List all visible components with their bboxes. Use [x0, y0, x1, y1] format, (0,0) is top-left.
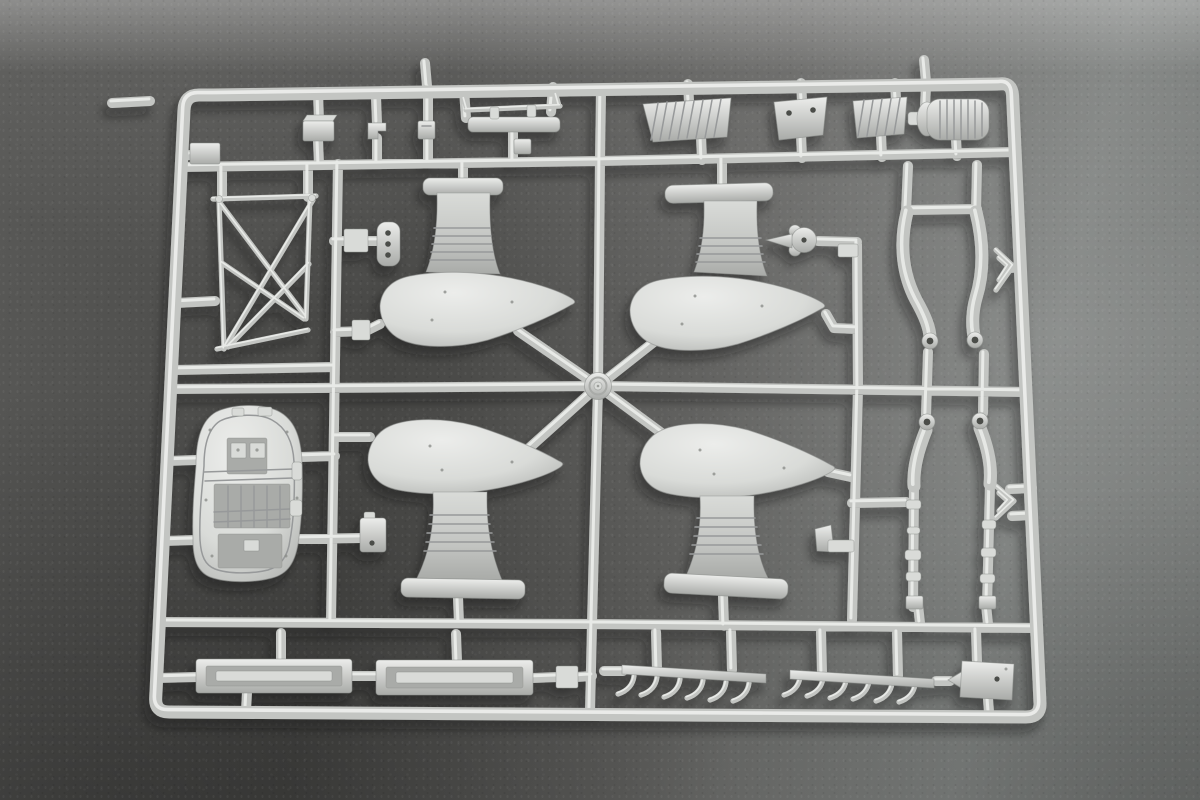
strut-frame-corner-nub — [309, 195, 316, 202]
strut-frame-corner-nub — [216, 196, 223, 203]
exhaust-stack-comb-1 — [622, 665, 766, 683]
photo-of-model-sprue — [0, 0, 1200, 800]
small-bracket-part-2 — [418, 121, 435, 139]
wheel-spat-lower-right — [640, 424, 835, 600]
small-box-part — [303, 115, 337, 141]
wheel-spat-upper-right — [630, 183, 825, 351]
louvered-panel-right — [853, 97, 907, 138]
access-plate-two-holes — [774, 97, 827, 140]
gate-pad — [352, 320, 370, 340]
small-flag-lower-right — [815, 525, 854, 552]
louvered-panel-left — [643, 98, 731, 142]
flat-plate-part — [948, 661, 1014, 700]
sprue-drawing — [0, 0, 1200, 800]
exhaust-stack-comb-2 — [790, 670, 934, 688]
sprue — [111, 58, 1040, 717]
channel-part-1 — [196, 659, 352, 693]
cockpit-floor-tub — [193, 405, 303, 581]
runner-network — [111, 58, 1036, 712]
center-hub-boss — [585, 373, 612, 400]
corner-box-part — [190, 143, 220, 164]
small-bracket-part-1 — [368, 123, 386, 139]
wheel-spat-upper-left — [380, 178, 575, 346]
small-box-lower-left — [360, 512, 386, 552]
